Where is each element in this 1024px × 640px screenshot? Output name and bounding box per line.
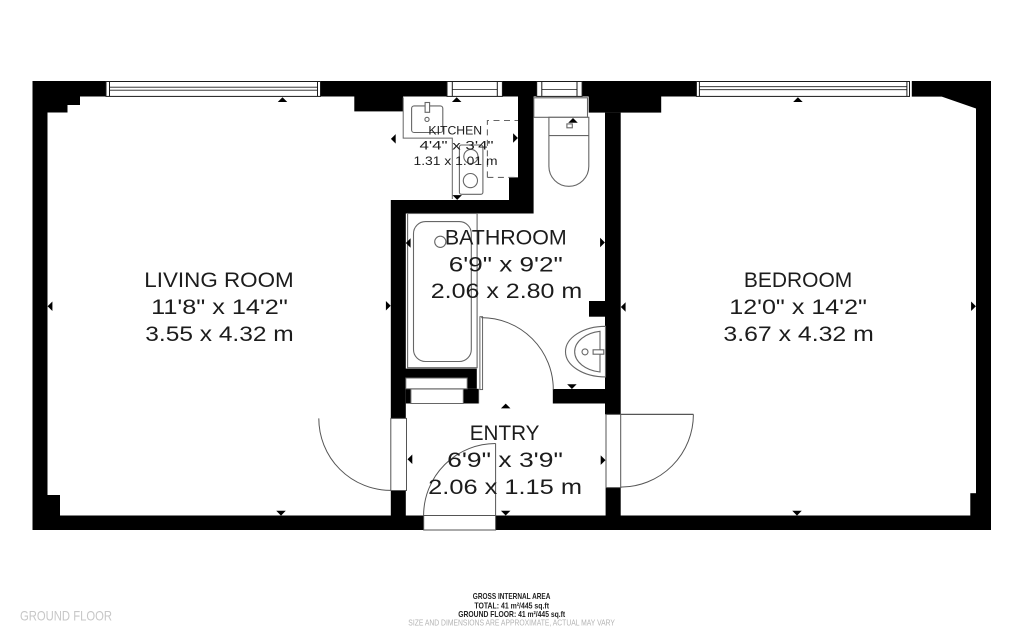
- svg-text:BEDROOM: BEDROOM: [744, 268, 852, 292]
- svg-text:SIZE AND DIMENSIONS ARE APPROX: SIZE AND DIMENSIONS ARE APPROXIMATE, ACT…: [408, 618, 615, 627]
- svg-text:3.67 x 4.32 m: 3.67 x 4.32 m: [723, 322, 873, 346]
- svg-text:2.06 x 2.80 m: 2.06 x 2.80 m: [431, 279, 583, 303]
- svg-text:ENTRY: ENTRY: [470, 421, 540, 445]
- svg-text:6'9" x 3'9": 6'9" x 3'9": [447, 448, 563, 472]
- svg-text:LIVING ROOM: LIVING ROOM: [144, 268, 293, 292]
- svg-text:KITCHEN: KITCHEN: [428, 126, 482, 138]
- svg-text:3.55 x 4.32 m: 3.55 x 4.32 m: [145, 322, 293, 346]
- svg-text:GROUND FLOOR: GROUND FLOOR: [20, 609, 112, 624]
- svg-text:11'8" x 14'2": 11'8" x 14'2": [151, 295, 288, 319]
- svg-text:2.06 x 1.15 m: 2.06 x 1.15 m: [428, 475, 582, 499]
- svg-text:6'9" x 9'2": 6'9" x 9'2": [449, 252, 563, 276]
- svg-text:4'4" x 3'4": 4'4" x 3'4": [420, 141, 494, 153]
- svg-text:BATHROOM: BATHROOM: [445, 225, 567, 249]
- svg-text:GROSS INTERNAL AREA: GROSS INTERNAL AREA: [473, 592, 551, 601]
- svg-text:12'0" x 14'2": 12'0" x 14'2": [729, 295, 867, 319]
- svg-text:1.31 x 1.01 m: 1.31 x 1.01 m: [414, 156, 498, 168]
